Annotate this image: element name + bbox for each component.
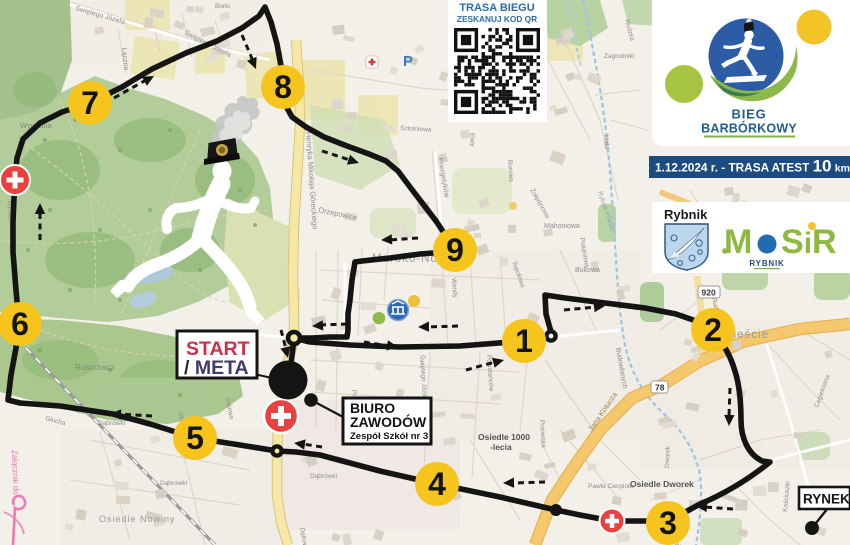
svg-text:RYNEK: RYNEK [803,492,850,507]
svg-text:M: M [724,223,752,261]
svg-text:Rybnik: Rybnik [664,207,708,222]
svg-text:SiR: SiR [781,223,837,261]
svg-text:ZESKANUJ KOD QR: ZESKANUJ KOD QR [457,14,537,24]
svg-text:Zagrodniki: Zagrodniki [604,53,634,60]
svg-text:Dąbrówki: Dąbrówki [310,473,337,480]
svg-text:Pawła Cierpioła: Pawła Cierpioła [588,483,634,490]
svg-text:Bukowa: Bukowa [575,267,600,274]
svg-text:Osiedle 1000: Osiedle 1000 [478,432,530,442]
svg-text:Osiedle Dworek: Osiedle Dworek [630,479,694,489]
svg-text:5: 5 [186,420,204,456]
svg-text:Zespół Szkół nr 3: Zespół Szkół nr 3 [350,431,428,442]
svg-text:4: 4 [428,466,446,502]
svg-text:3: 3 [659,505,677,541]
svg-text:BIEG: BIEG [732,107,767,122]
svg-text:RYBNIK: RYBNIK [749,259,784,268]
svg-text:-lecia: -lecia [490,442,512,452]
svg-text:1: 1 [515,323,533,359]
svg-text:7: 7 [81,85,99,121]
svg-text:Borki: Borki [215,3,230,10]
svg-text:P: P [403,53,413,70]
svg-text:Dworek: Dworek [664,445,672,468]
svg-text:/ META: / META [184,357,249,379]
svg-text:8: 8 [274,69,292,105]
svg-text:BARBÓRKOWY: BARBÓRKOWY [701,121,797,136]
svg-text:2: 2 [704,312,722,348]
svg-text:TRASA BIEGU: TRASA BIEGU [459,2,534,14]
svg-text:Dąbrówki: Dąbrówki [98,420,125,427]
svg-text:920: 920 [702,288,716,298]
svg-text:Dąbrówki: Dąbrówki [160,480,187,487]
svg-text:Mała: Mała [602,135,610,150]
svg-text:Elwy: Elwy [468,133,476,148]
svg-text:ZAWODÓW: ZAWODÓW [350,413,427,430]
svg-text:Rosochacz: Rosochacz [75,363,115,372]
svg-text:9: 9 [446,232,464,268]
svg-text:Mahoniowa: Mahoniowa [544,223,580,230]
svg-text:Osiedle Nowiny: Osiedle Nowiny [99,514,176,524]
svg-text:Wandy: Wandy [450,278,458,299]
svg-text:78: 78 [655,383,665,393]
svg-text:6: 6 [11,306,29,342]
